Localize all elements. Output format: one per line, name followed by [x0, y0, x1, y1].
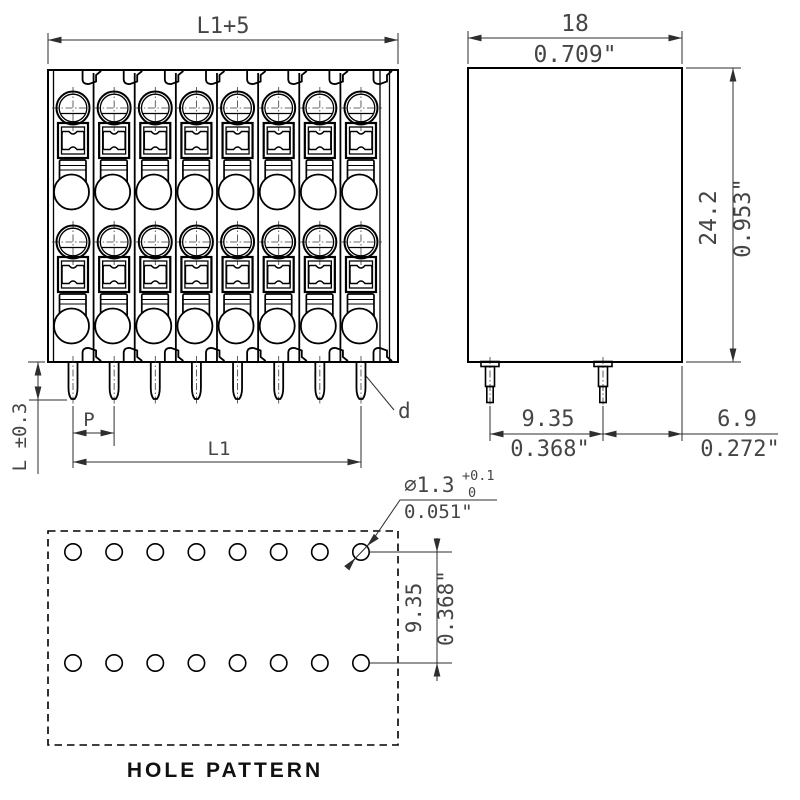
- hole-diameter-mm-label: ⌀1.3: [404, 473, 455, 497]
- dim-height: 24.2 0.953": [686, 68, 756, 362]
- hole-tolerance-plus-label: +0.1: [462, 468, 495, 484]
- dim-depth-mm-label: 18: [561, 11, 589, 37]
- dim-overall-width-label: L1+5: [197, 14, 250, 39]
- side-pins: [481, 357, 612, 408]
- dim-depth: 18 0.709": [468, 11, 682, 68]
- front-units: [52, 71, 392, 404]
- dim-pitch: P: [73, 406, 114, 468]
- pin-diameter-callout: d: [366, 376, 411, 423]
- technical-drawing: L1+5 L ±0.3 P L1 d: [0, 0, 800, 800]
- front-view: L1+5 L ±0.3 P L1 d: [9, 14, 411, 474]
- dim-pin-length: L ±0.3: [9, 362, 67, 474]
- dim-depth-inch-label: 0.709": [533, 42, 616, 68]
- dim-pin-to-edge-inch-label: 0.272": [700, 437, 779, 462]
- pin-diameter-label: d: [398, 399, 411, 423]
- dim-height-mm-label: 24.2: [696, 190, 722, 245]
- dim-pin-length-label: L ±0.3: [9, 403, 31, 472]
- hole-pattern-title: HOLE PATTERN: [127, 759, 323, 782]
- hole-pattern-outline: [48, 531, 398, 745]
- dim-height-inch-label: 0.953": [731, 178, 756, 257]
- dim-row-spacing-inch-label: 0.368": [434, 570, 458, 646]
- dim-pin-span: L1: [73, 406, 361, 468]
- hole-diameter-inch-label: 0.051": [404, 501, 473, 523]
- dim-overall-width: L1+5: [48, 14, 398, 64]
- dim-pin-spacing-mm-label: 9.35: [522, 407, 575, 432]
- dim-row-spacing-mm-label: 9.35: [402, 583, 426, 634]
- hole-diameter-callout: ⌀1.3 +0.1 0 0.051": [348, 468, 497, 566]
- dim-pitch-label: P: [83, 409, 94, 431]
- side-body-outline: [468, 68, 682, 362]
- hole-pattern-view: ⌀1.3 +0.1 0 0.051" 9.35 0.368" HOLE PATT…: [48, 468, 497, 782]
- hole-tolerance-minus-label: 0: [468, 485, 476, 501]
- dim-side-bottom: 9.35 0.368" 6.9 0.272": [490, 366, 780, 462]
- hole-grid: [65, 544, 369, 671]
- dim-pin-spacing-inch-label: 0.368": [510, 437, 589, 462]
- dim-pin-span-label: L1: [208, 438, 231, 460]
- side-view: 18 0.709" 24.2 0.953" 9.35 0.368" 6.9 0.…: [468, 11, 780, 462]
- dim-row-spacing: 9.35 0.368": [370, 538, 459, 681]
- dim-pin-to-edge-mm-label: 6.9: [717, 407, 757, 432]
